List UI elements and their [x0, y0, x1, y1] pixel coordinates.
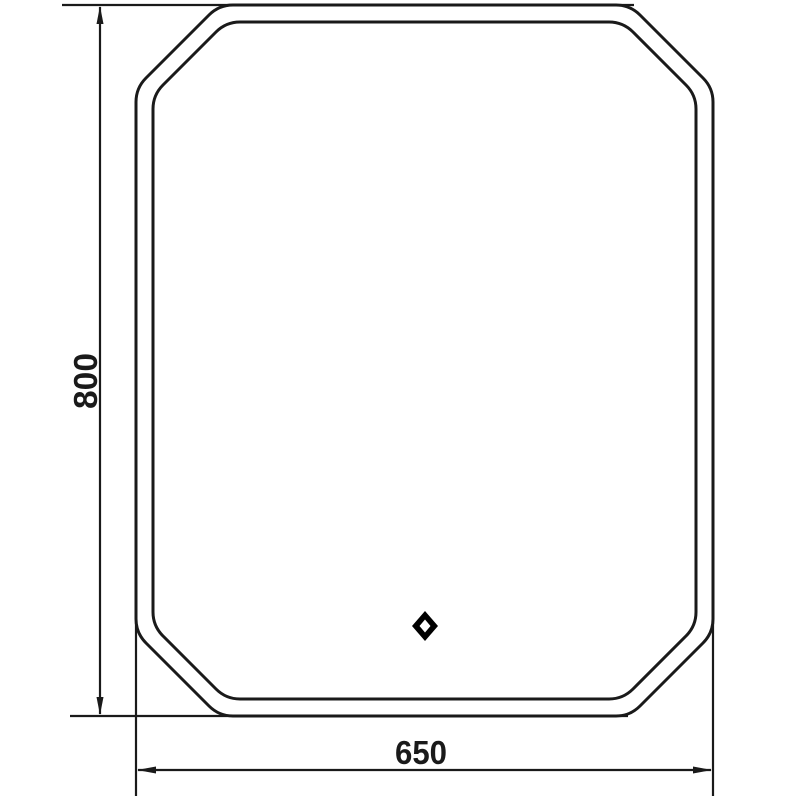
arrow-up-icon	[97, 6, 104, 24]
arrow-right-icon	[693, 767, 712, 774]
mirror-inner-outline	[153, 22, 696, 699]
arrow-left-icon	[137, 767, 156, 774]
width-dimension-label: 650	[395, 734, 447, 771]
mirror-outlines	[136, 5, 713, 716]
touch-sensor-icon	[412, 611, 438, 641]
dimension-arrowheads	[97, 6, 713, 774]
arrow-down-icon	[97, 697, 104, 715]
mirror-dimension-diagram: 800 650	[0, 0, 800, 800]
technical-drawing-page: 800 650	[0, 0, 800, 800]
mirror-outer-outline	[136, 5, 713, 716]
dimension-lines	[100, 7, 711, 770]
height-dimension-label: 800	[67, 353, 104, 409]
extension-lines	[62, 5, 713, 796]
